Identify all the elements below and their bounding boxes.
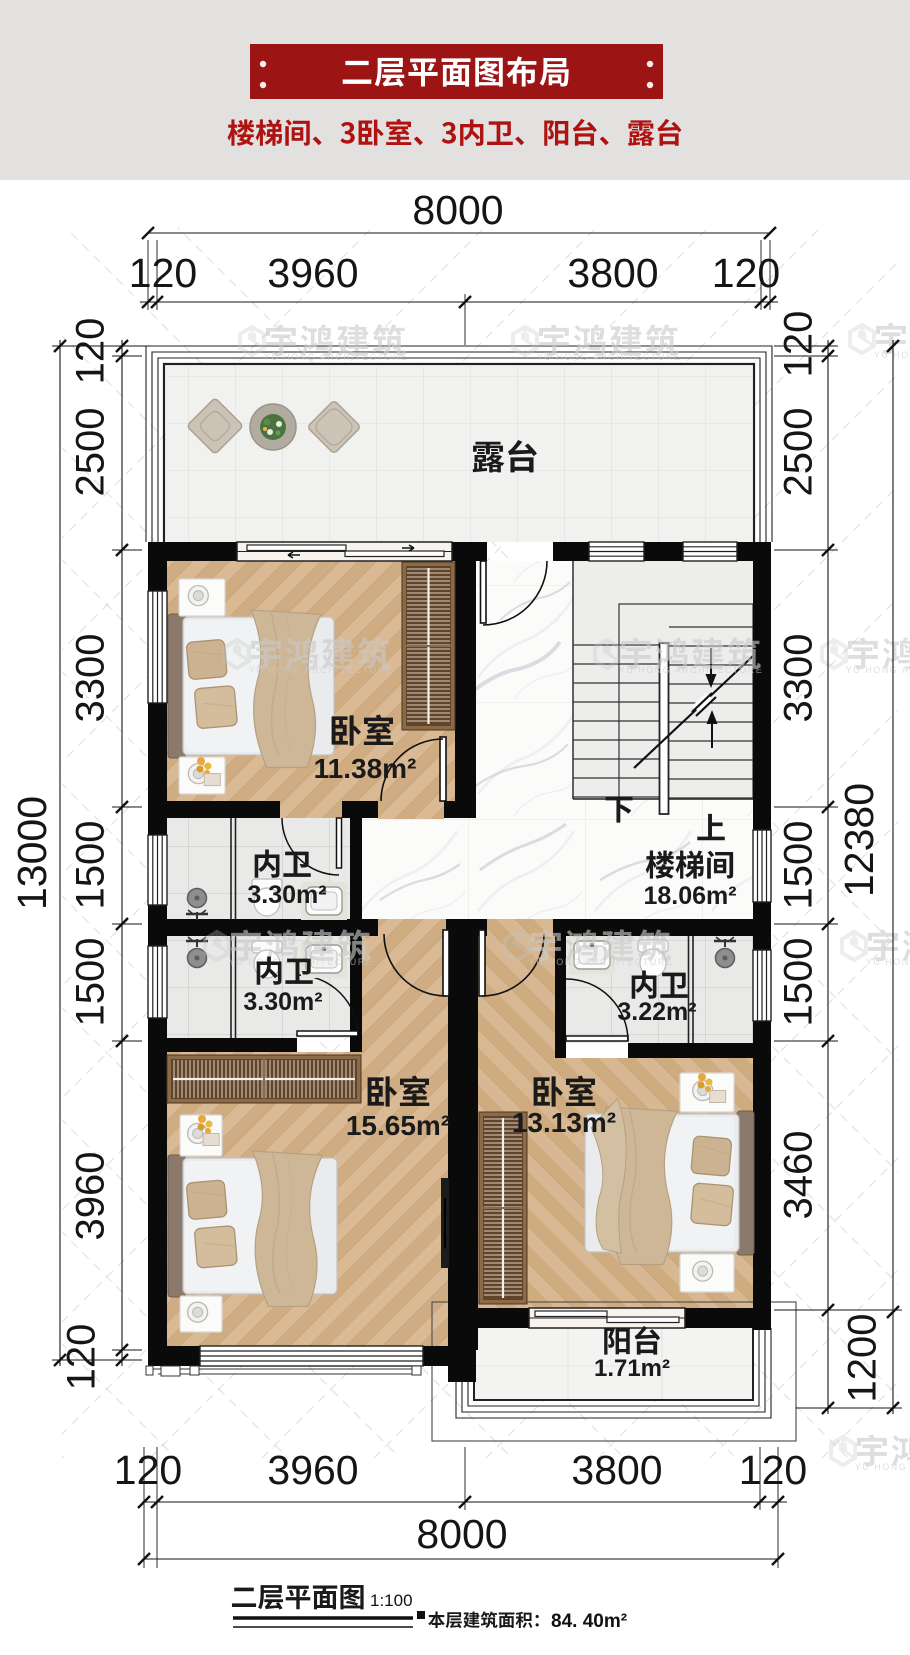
svg-text:YU HONG ARCHITECTURE: YU HONG ARCHITECTURE (855, 1462, 910, 1472)
svg-text:120: 120 (114, 1447, 182, 1493)
svg-text:3960: 3960 (267, 250, 358, 296)
svg-text:YU HONG ARCHITECTURE: YU HONG ARCHITECTURE (874, 350, 910, 360)
svg-text:15.65m²: 15.65m² (346, 1110, 450, 1141)
svg-text:3960: 3960 (69, 1152, 113, 1241)
svg-text:YU HONG ARCHITECTURE: YU HONG ARCHITECTURE (249, 665, 394, 675)
svg-text:3300: 3300 (777, 634, 821, 723)
svg-text:3800: 3800 (567, 250, 658, 296)
svg-text:YU HONG ARCHITECTURE: YU HONG ARCHITECTURE (866, 957, 910, 967)
svg-text:YU HONG ARCHITECTURE: YU HONG ARCHITECTURE (619, 665, 764, 675)
svg-text:YU HONG ARCHITECTURE: YU HONG ARCHITECTURE (529, 957, 674, 967)
svg-text:1:100: 1:100 (370, 1591, 413, 1610)
svg-text:3960: 3960 (267, 1447, 358, 1493)
svg-text:1200: 1200 (841, 1314, 885, 1403)
svg-text:120: 120 (777, 311, 821, 378)
svg-text:120: 120 (739, 1447, 807, 1493)
svg-text:3800: 3800 (571, 1447, 662, 1493)
svg-text:120: 120 (129, 250, 197, 296)
svg-text:YU HONG ARCHITECTURE: YU HONG ARCHITECTURE (537, 352, 682, 362)
svg-text:3.22m²: 3.22m² (617, 998, 696, 1026)
svg-text:3.30m²: 3.30m² (247, 881, 326, 909)
svg-text:12380: 12380 (836, 783, 882, 897)
svg-text:YU HONG ARCHITECTURE: YU HONG ARCHITECTURE (846, 665, 910, 675)
svg-text:13000: 13000 (9, 796, 55, 910)
svg-text:11.38m²: 11.38m² (314, 753, 417, 784)
svg-text:120: 120 (69, 318, 113, 385)
svg-text:1500: 1500 (69, 938, 113, 1027)
svg-text:2500: 2500 (777, 408, 821, 497)
svg-text:1500: 1500 (69, 821, 113, 910)
svg-text:2500: 2500 (69, 408, 113, 497)
svg-text:8000: 8000 (416, 1511, 507, 1557)
svg-text:YU HONG ARCHITECTURE: YU HONG ARCHITECTURE (264, 352, 409, 362)
svg-text:18.06m²: 18.06m² (643, 882, 736, 910)
svg-text:1.71m²: 1.71m² (594, 1355, 670, 1382)
svg-text:1500: 1500 (777, 938, 821, 1027)
svg-text:3300: 3300 (69, 634, 113, 723)
svg-text:3.30m²: 3.30m² (243, 988, 322, 1016)
svg-text:3460: 3460 (777, 1131, 821, 1220)
svg-text:8000: 8000 (412, 187, 503, 233)
svg-text:13.13m²: 13.13m² (512, 1107, 616, 1138)
svg-text:84. 40m²: 84. 40m² (551, 1611, 627, 1632)
svg-text:120: 120 (60, 1324, 104, 1391)
svg-text:1500: 1500 (777, 821, 821, 910)
